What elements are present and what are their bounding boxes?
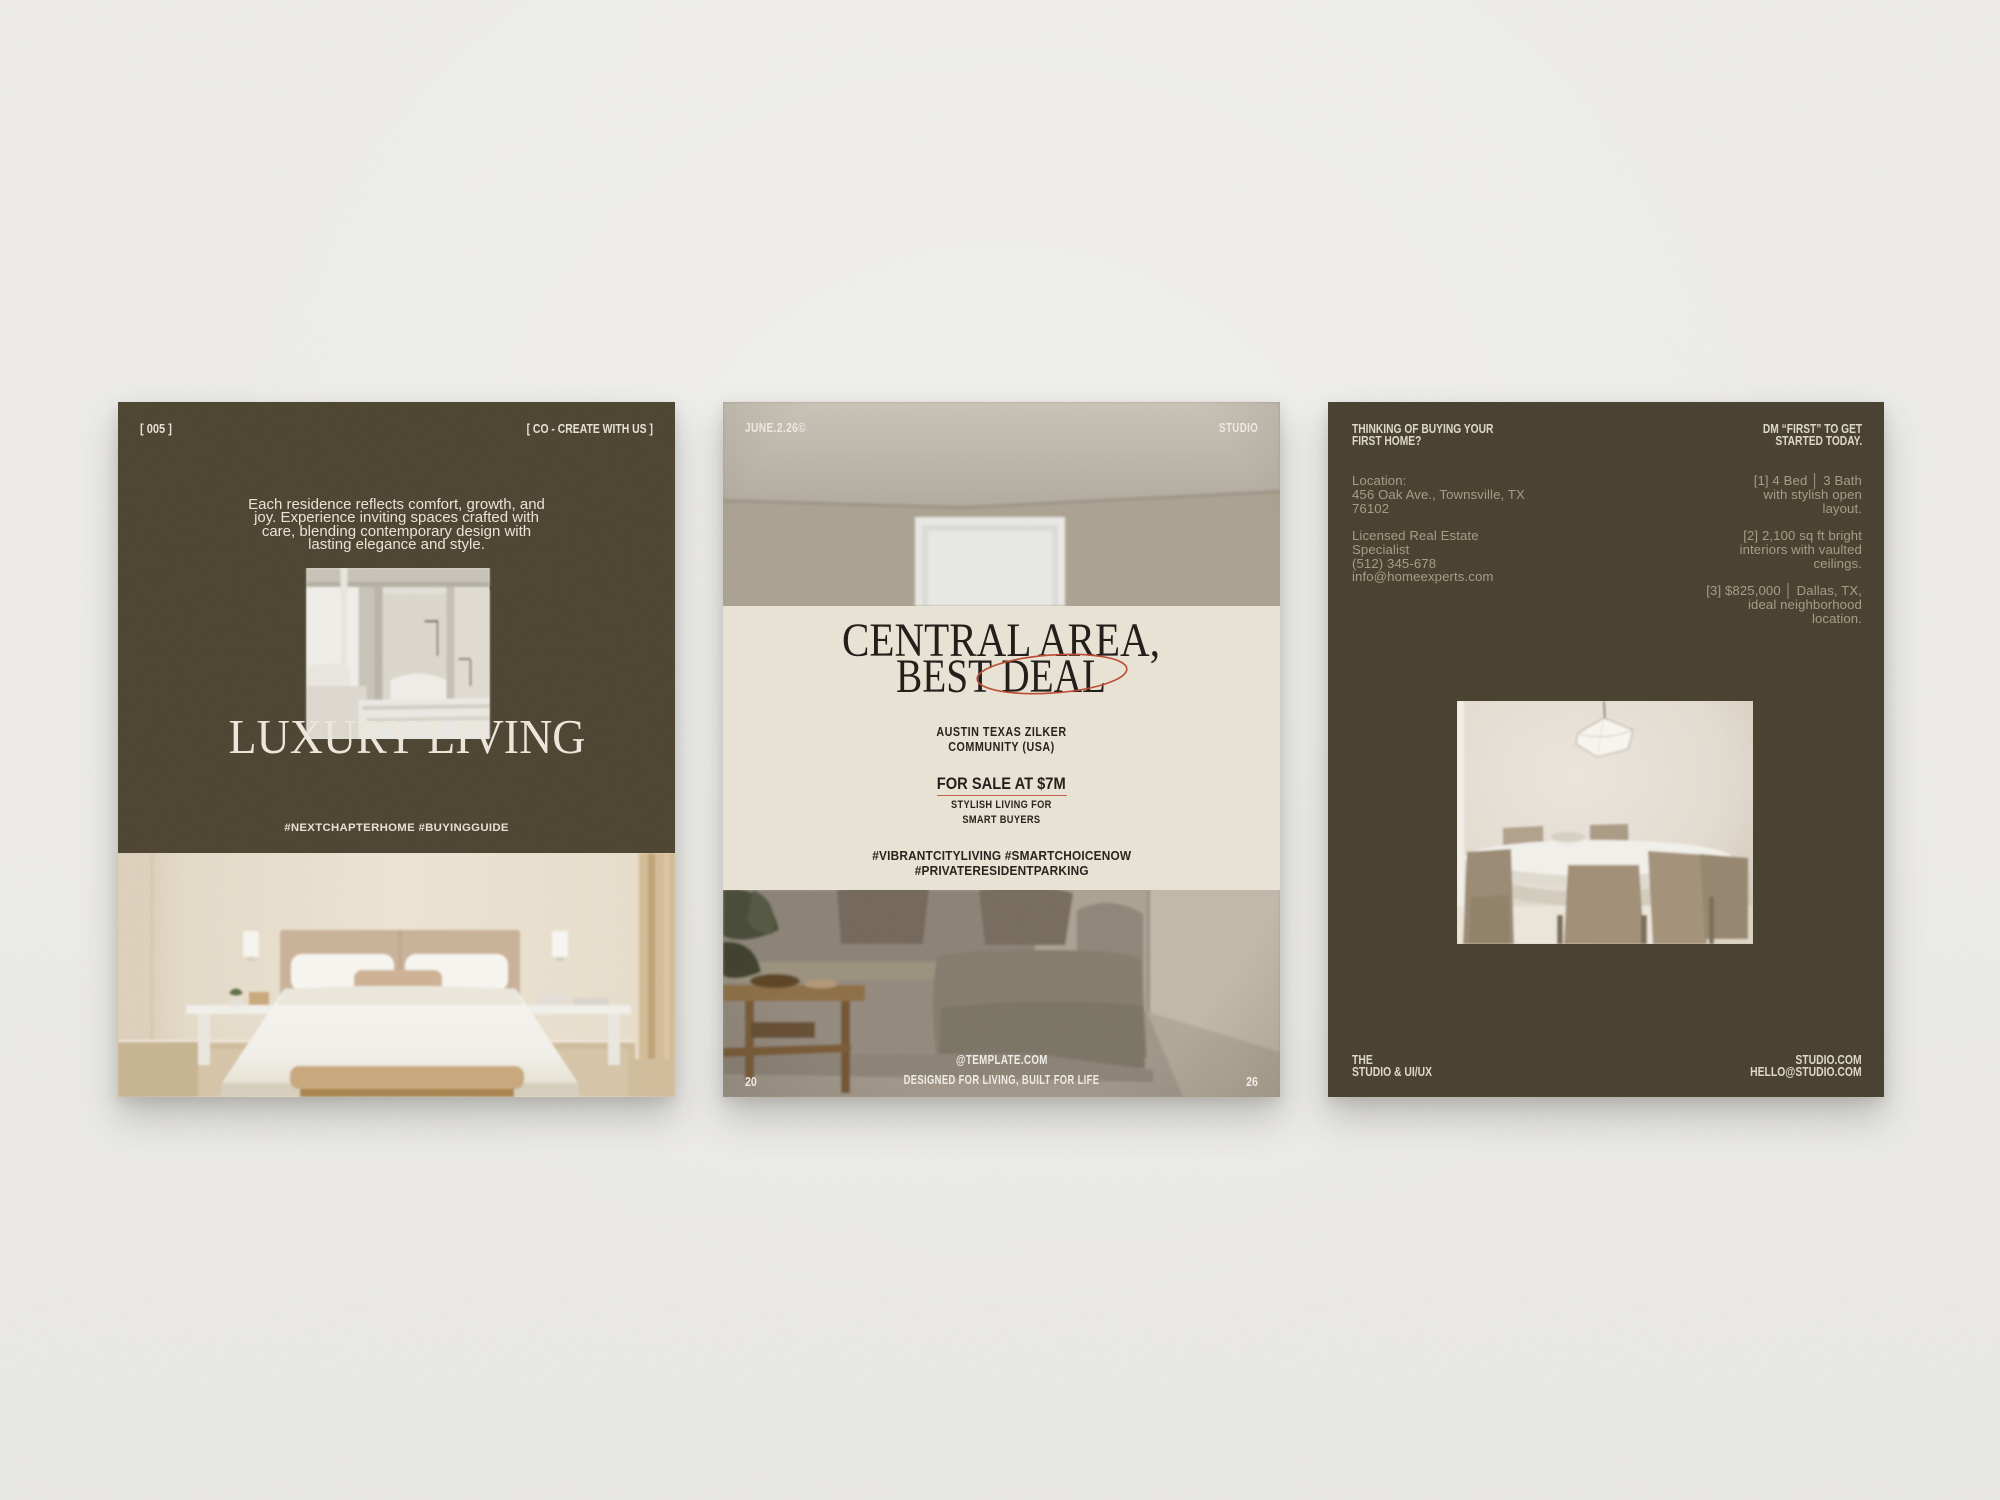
svg-text:BEST DEAL: BEST DEAL — [896, 650, 1106, 703]
svg-text:LUXURY LIVING: LUXURY LIVING — [229, 709, 586, 764]
